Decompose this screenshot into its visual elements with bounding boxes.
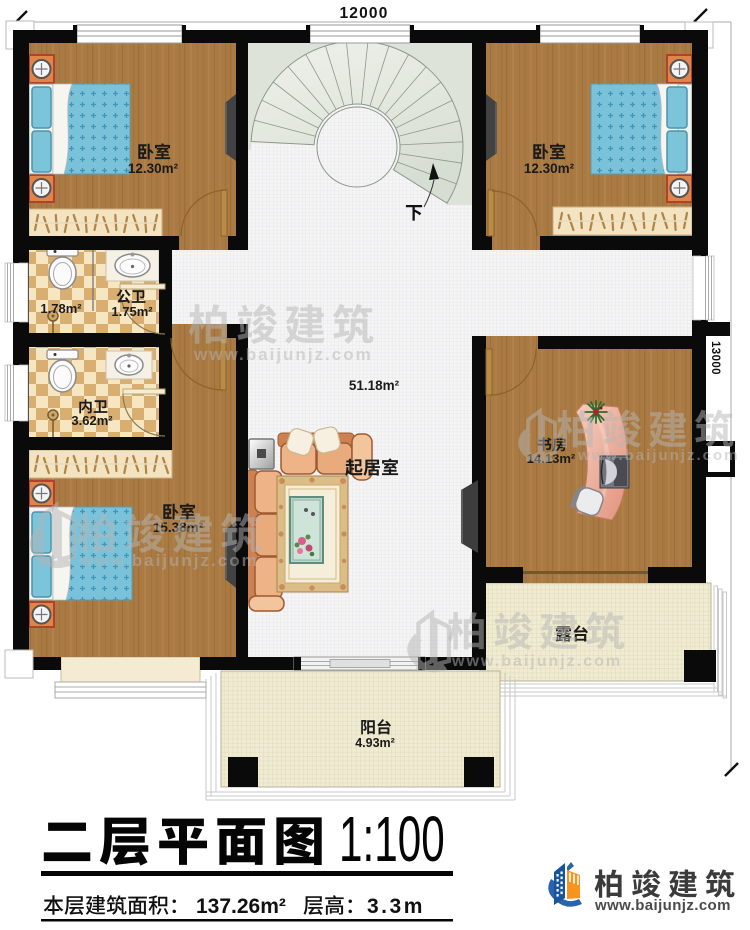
svg-text:1.78m²: 1.78m²: [40, 301, 82, 316]
svg-text:12.30m²: 12.30m²: [524, 161, 575, 176]
svg-text:4.93m²: 4.93m²: [355, 736, 395, 750]
svg-text:12000: 12000: [339, 5, 388, 22]
svg-text:1:100: 1:100: [339, 804, 445, 875]
svg-text:51.18m²: 51.18m²: [349, 378, 400, 393]
svg-text:www.baijunjz.com: www.baijunjz.com: [193, 345, 373, 364]
svg-text:www.baijunjz.com: www.baijunjz.com: [577, 447, 739, 464]
svg-text:13000: 13000: [709, 341, 721, 375]
svg-text:137.26m²: 137.26m²: [196, 895, 286, 918]
svg-text:3.62m²: 3.62m²: [71, 413, 113, 428]
svg-text:www.baijunjz.com: www.baijunjz.com: [79, 551, 259, 570]
svg-text:3.3m: 3.3m: [367, 895, 425, 918]
svg-text:www.baijunjz.com: www.baijunjz.com: [451, 653, 622, 670]
svg-text:1.75m²: 1.75m²: [111, 304, 153, 319]
svg-text:12.30m²: 12.30m²: [128, 161, 179, 176]
svg-text:www.baijunjz.com: www.baijunjz.com: [594, 897, 731, 914]
